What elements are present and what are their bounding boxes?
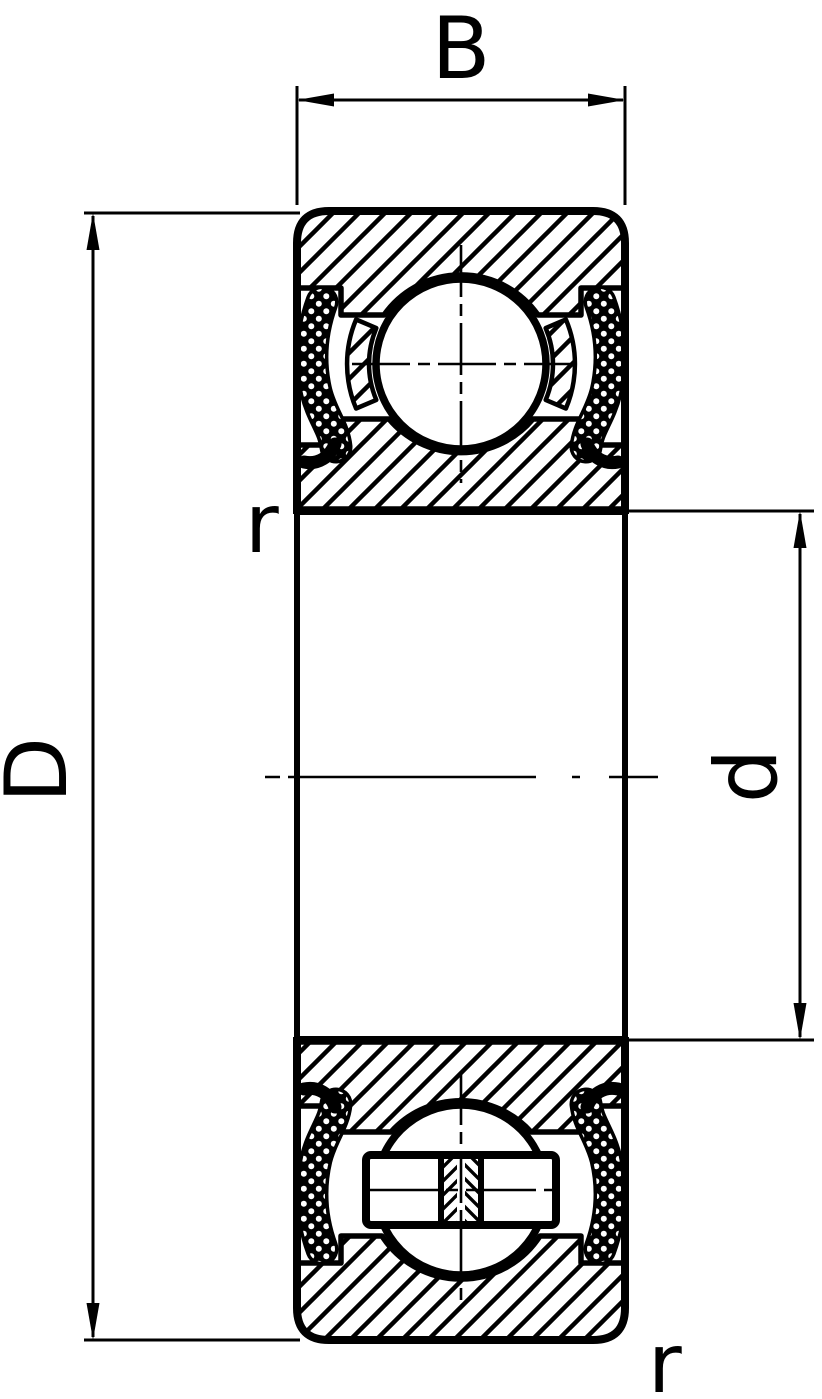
seal-right-top — [586, 302, 618, 463]
arrowhead-D-top — [87, 213, 100, 250]
bearing-section-bottom — [294, 1037, 628, 1340]
radius-label-upper: r — [245, 477, 279, 572]
arrowhead-D-bottom — [87, 1303, 100, 1340]
dimension-label-D: D — [0, 737, 87, 803]
drawing-canvas: B D d r r — [0, 0, 822, 1399]
dimension-B: B — [297, 0, 625, 205]
seal-left-top — [304, 302, 336, 463]
seal-left-bottom — [304, 1088, 336, 1249]
arrowhead-d-bottom — [794, 1003, 807, 1040]
radius-label-lower: r — [648, 1317, 682, 1399]
dimension-label-B: B — [432, 0, 491, 99]
arrowhead-d-top — [794, 511, 807, 548]
arrowhead-B-left — [297, 94, 334, 107]
seal-right-bottom — [586, 1088, 618, 1249]
dimension-D: D — [0, 213, 300, 1340]
dimension-d: d — [629, 511, 814, 1040]
bearing-cross-section-drawing: B D d r r — [0, 0, 822, 1399]
arrowhead-B-right — [588, 94, 625, 107]
bearing-section-top — [294, 211, 628, 514]
dimension-label-d: d — [697, 749, 797, 804]
